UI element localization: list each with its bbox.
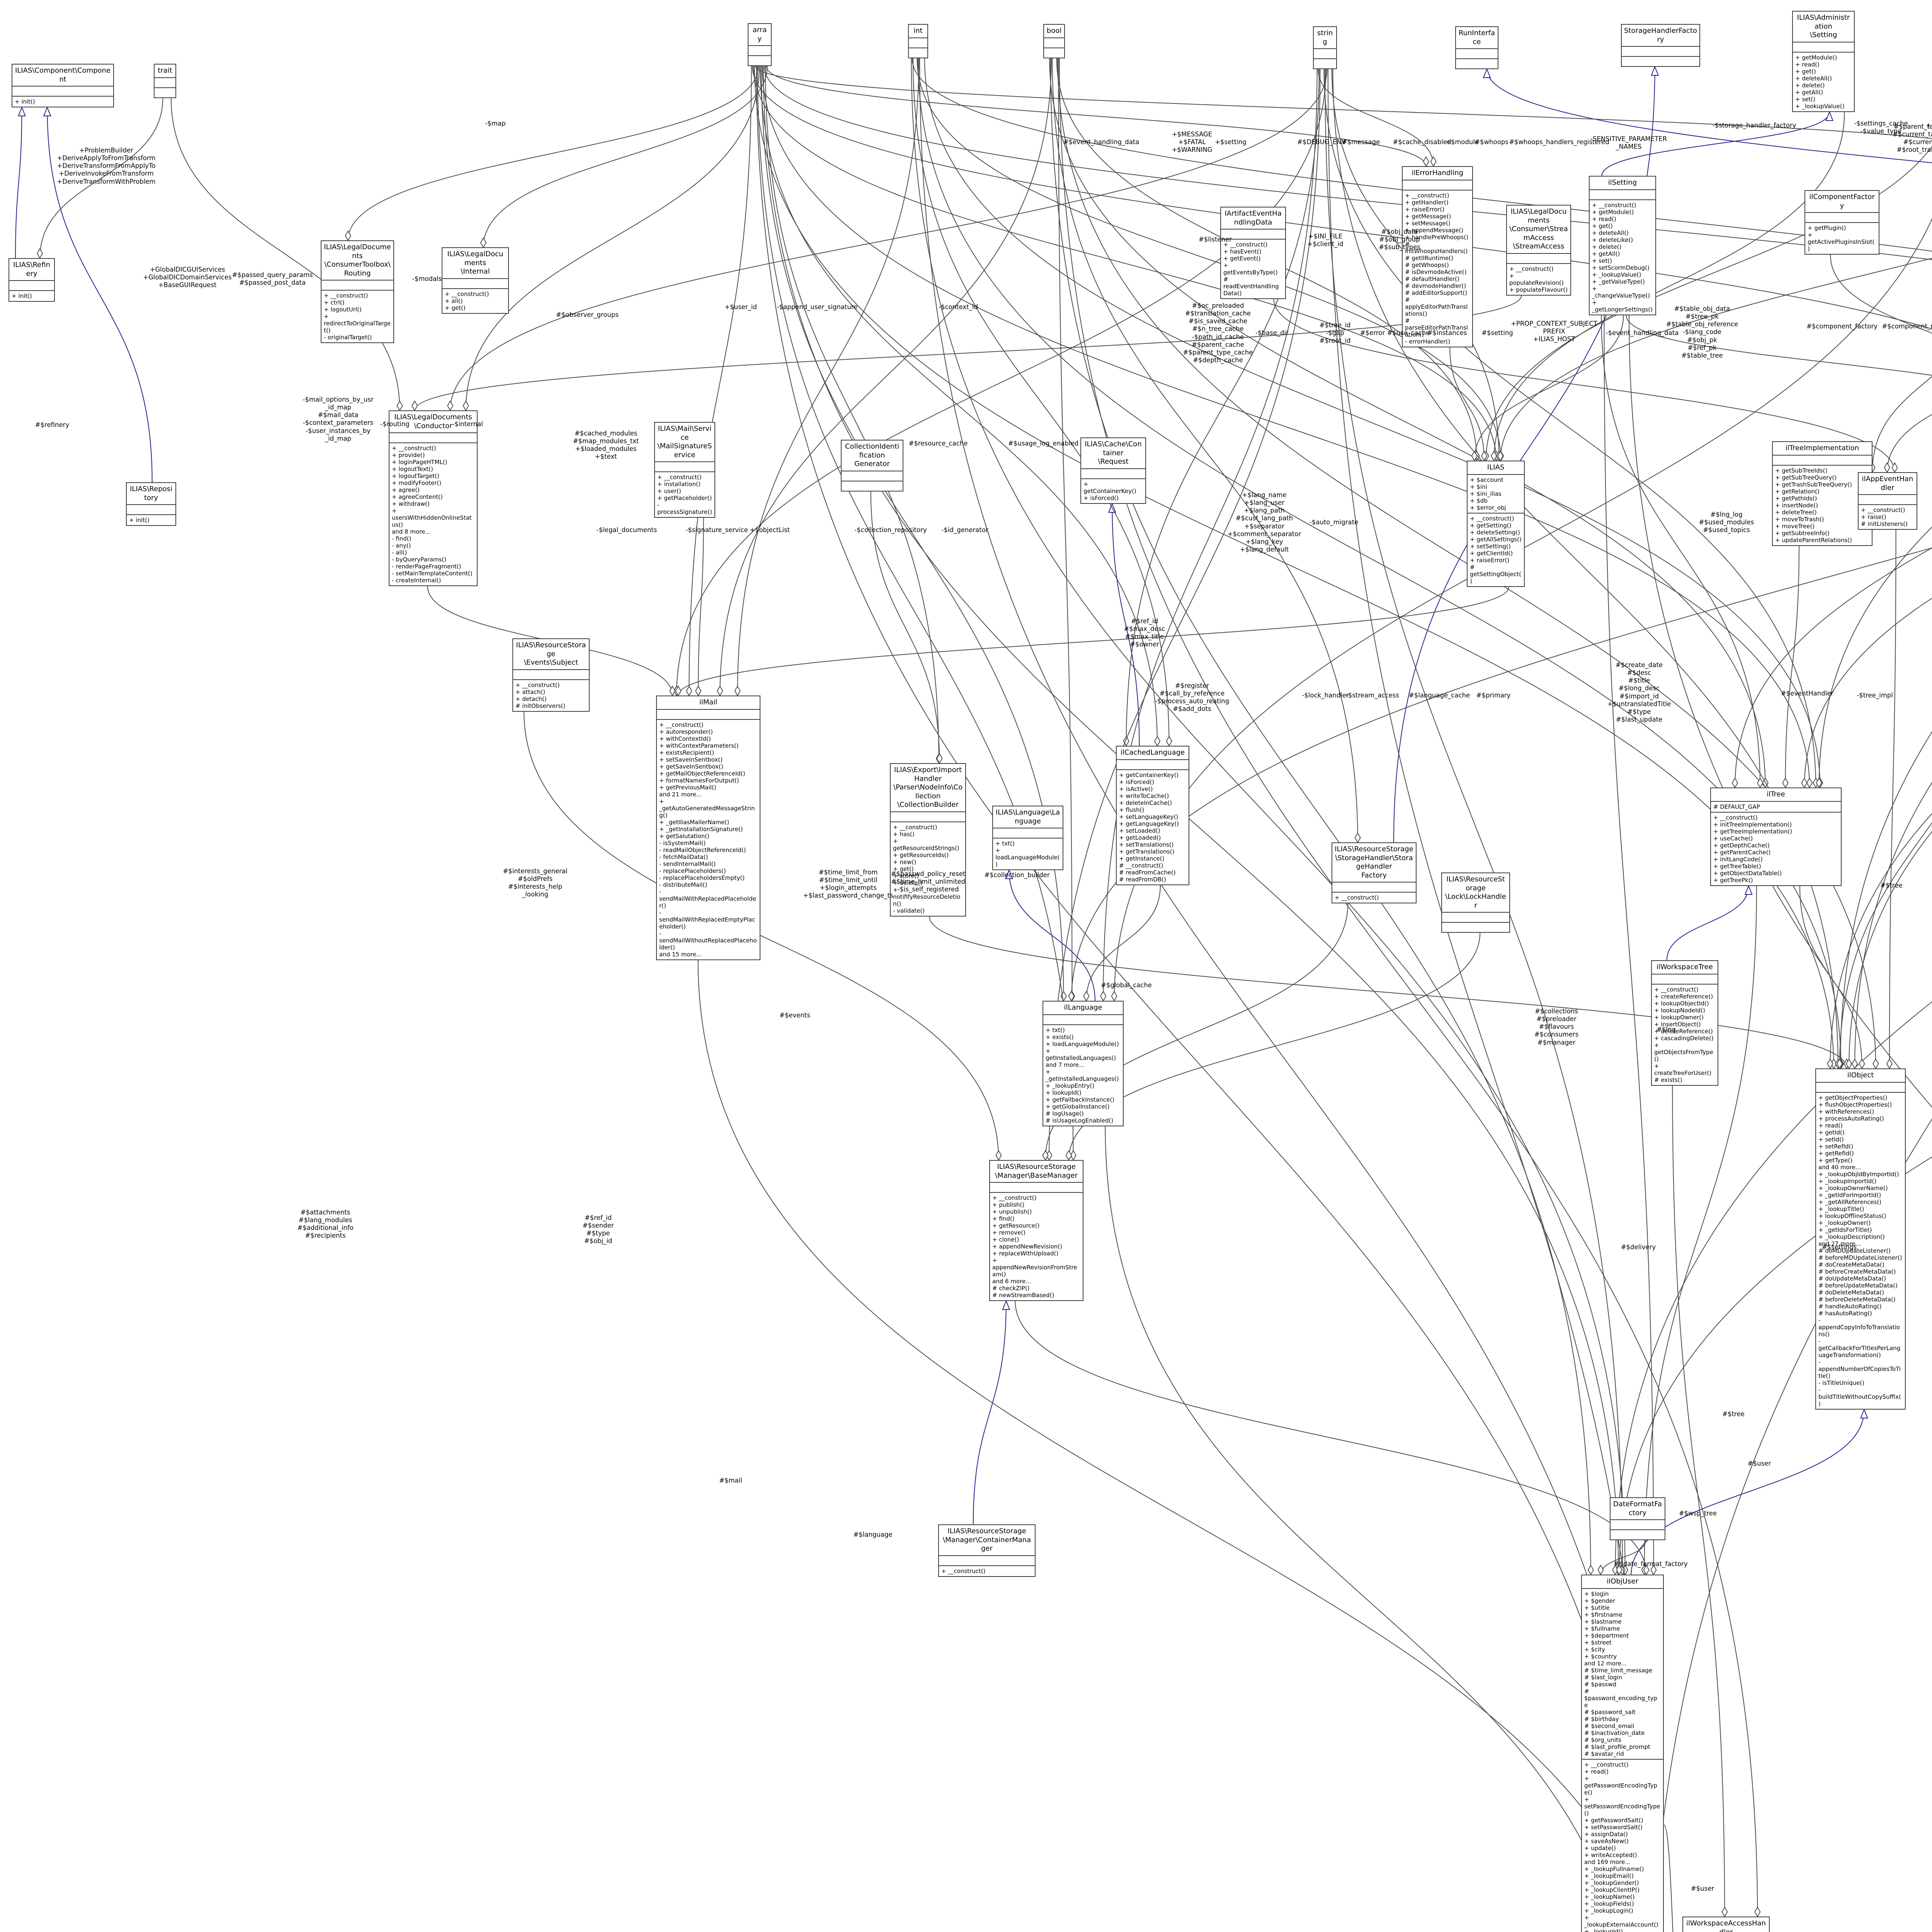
class-methods: + __construct() [939,1566,1035,1576]
edge-label-34: #$parent_tag_name #$current_tag_name #$c… [1893,123,1932,154]
edge-label-15: +$setting [1215,138,1247,146]
class-attributes [1044,38,1064,48]
class-methods: + txt()+ loadLanguageModule() [993,838,1063,869]
edge-label-63: -$tree_impl [1857,692,1893,699]
edge-label-10: +$user_id [724,303,757,311]
class-title: ILIAS [1468,461,1524,475]
class-methods: + getPlugin()+ getActivePluginsInSlot() [1805,223,1879,254]
class-attributes [657,710,760,720]
class-node-shf[interactable]: StorageHandlerFactory [1621,24,1700,67]
class-title: trait [155,65,175,78]
class-methods [1456,59,1498,68]
edge-label-37: #$component_factory [1806,323,1878,330]
class-title: ILIAS\Export\ImportHandler\Parser\NodeIn… [891,764,965,812]
edge-illanguage-to-mailnotification [1105,1126,1640,1932]
edge-array-to-conductor [466,66,759,410]
edge-objectdic-to-ilobject [1849,239,1932,1068]
edge-label-86: #$delivery [1621,1243,1656,1251]
edge-label-0: +ProblemBuilder +DeriveApplyToFromTransf… [57,147,156,186]
class-title: CollectionIdentificationGenerator [842,440,903,471]
class-methods [909,48,927,58]
edge-label-83: #$collections #$preloader #$flavours #$c… [1534,1008,1579,1047]
class-attributes [1773,456,1872,466]
class-title: ILIAS\LegalDocuments\Internal [442,248,508,279]
class-title: RunInterface [1456,27,1498,49]
class-node-basemanager[interactable]: ILIAS\ResourceStorage\Manager\BaseManage… [989,1160,1083,1301]
class-attributes [513,670,589,680]
edge-label-61: #$primary [1476,692,1511,699]
class-node-repository[interactable]: ILIAS\Repository+ init() [126,482,176,526]
class-node-treeimpl[interactable]: ilTreeImplementation+ getSubTreeIds()+ g… [1772,441,1872,546]
class-methods: + getContainerKey()+ isForced()+ isActiv… [1117,770,1189,884]
class-methods: + __construct()+ raise()# initListeners(… [1859,505,1917,529]
class-node-trait[interactable]: trait [154,64,176,98]
class-attributes [1590,190,1655,200]
class-title: ilTree [1711,788,1841,802]
class-title: string [1314,27,1336,49]
edge-refinery-to-component [15,107,22,258]
class-attributes [748,46,771,56]
class-methods: + __construct()+ has()+ getResourceIdStr… [891,822,965,916]
edge-label-1: +GlobalDICGUIServices +GlobalDICDomainSe… [143,266,231,289]
edge-label-75: +$objectList [750,526,790,534]
edge-ilobjuser-to-wsaccess [1664,1825,1682,1932]
edge-label-56: #$lng_log #$used_modules #$used_topics [1699,511,1754,534]
class-methods: + __construct()+ all()+ get() [442,289,508,313]
class-methods [1314,59,1336,68]
edge-label-77: -$id_generator [941,526,988,534]
edge-label-53: #$table_obj_data #$tree_pk #$table_obj_r… [1666,305,1738,360]
edge-label-57: #$register #$call_by_reference -$process… [1155,682,1229,713]
class-node-bool[interactable]: bool [1043,24,1065,58]
class-node-lockhandler[interactable]: ILIAS\ResourceStorage\Lock\LockHandler [1441,872,1510,933]
class-methods: + __construct()+ installation()+ user()+… [655,472,714,517]
class-methods: + txt()+ exists()+ loadLanguageModule()+… [1043,1025,1123,1126]
class-attributes [1816,1083,1905,1093]
edge-label-17: #$message [1342,138,1380,146]
class-methods: + __construct()+ read()+ getPasswordEnco… [1582,1760,1663,1932]
edge-label-73: -$legal_documents [597,526,657,534]
class-title: ilAppEventHandler [1859,473,1917,495]
class-node-ilsetting[interactable]: ilSetting+ __construct()+ getModule()+ r… [1589,176,1656,315]
class-node-dateformatfactory[interactable]: DateFormatFactory [1610,1497,1665,1540]
class-node-storagehandlerfactory_rs[interactable]: ILIAS\ResourceStorage\StorageHandler\Sto… [1332,842,1417,903]
edge-label-84: #$lng [1656,1026,1676,1034]
class-attributes [1043,1015,1123,1025]
edge-label-48: #$use_cache [1387,329,1430,337]
class-node-component[interactable]: ILIAS\Component\Component+ init() [12,64,114,107]
class-attributes [1332,883,1416,893]
edge-ilias-to-ilmail [678,587,1509,696]
edge-containermanager-to-basemanager [973,1301,1006,1524]
class-node-wsaccess[interactable]: ilWorkspaceAccessHandler+ __construct()+… [1682,1917,1770,1932]
class-title: ILIAS\Administration\Setting [1793,12,1854,43]
class-title: ILIAS\ResourceStorage\Manager\ContainerM… [939,1525,1035,1556]
class-title: ilTreeImplementation [1773,442,1872,456]
class-methods: + __construct()+ publish()+ unpublish()+… [990,1193,1083,1300]
class-attributes [993,828,1063,838]
class-methods: + __construct()+ getHandler()+ raiseErro… [1403,190,1472,347]
edge-label-5: -$mail_options_by_usr _id_map #$mail_dat… [303,396,373,443]
edge-label-55: -$auto_migrate [1310,519,1358,526]
class-title: ilWorkspaceTree [1652,961,1718,975]
edge-label-64: #$eventHandler [1781,690,1833,697]
edge-mailsig-to-ilmail [698,518,704,696]
class-attributes [1456,49,1498,59]
class-attributes [655,462,714,472]
edge-wstree-to-iltree [1667,886,1749,960]
class-methods: + __construct()+ populateRevision()+ pop… [1507,264,1570,295]
class-node-artifact_ehd[interactable]: IArtifactEventHandlingData+ __construct(… [1220,207,1286,299]
edge-label-95: #$mail [719,1477,742,1485]
edge-const-to-iltree [1819,80,1932,787]
class-node-ilmail[interactable]: ilMail+ __construct()+ autoresponder()+ … [656,696,760,960]
class-attributes [1314,49,1336,59]
edge-label-46: #$tree_id -$gap #$root_id [1320,321,1351,345]
edge-label-12: -$context_id [939,303,978,311]
class-node-admin_setting[interactable]: ILIAS\Administration\Setting+ getModule(… [1792,11,1855,112]
edge-label-79: #$usage_log_enabled [1008,440,1078,447]
edge-label-11: -$append_user_signature [777,303,858,311]
class-node-runinterface[interactable]: RunInterface [1455,26,1498,69]
edge-label-90: #$time_limit_from #$time_limit_until +$l… [803,869,893,900]
edge-label-76: -$collection_repository [854,526,927,534]
class-node-array[interactable]: array [748,23,772,66]
edge-label-54: +$lang_name +$lang_user +$lang_path #$cu… [1228,492,1301,554]
edge-objdef-to-ilobject [1840,599,1932,1068]
class-title: ILIAS\Cache\Container\Request [1081,438,1145,469]
edge-compfactory-to-objdef [1830,255,1932,410]
class-attributes [1611,1520,1665,1530]
class-title: ilWorkspaceAccessHandler [1683,1917,1769,1932]
class-node-ilobjuser[interactable]: ilObjUser+ $login+ $gender+ $utitle+ $fi… [1581,1575,1664,1932]
edge-label-7: -$internal [452,420,483,428]
class-node-streamaccess[interactable]: ILIAS\LegalDocuments\Consumer\StreamAcce… [1506,205,1571,296]
class-methods [1611,1530,1665,1539]
edge-label-6: -$routing [380,420,409,428]
edge-label-23: #$listener [1199,236,1232,243]
class-attributes [1622,47,1699,57]
edge-array-to-routing [348,66,759,240]
class-attributes [155,78,175,88]
edge-string-to-ilmail [677,69,1326,696]
edge-label-81: #$cached_modules #$map_modules_txt +$loa… [573,430,639,461]
class-methods: + getSubTreeIds()+ getSubTreeQuery()+ ge… [1773,466,1872,545]
class-node-iltree[interactable]: ilTree# DEFAULT_GAP+ __construct()+ init… [1710,787,1842,886]
class-title: ILIAS\LegalDocuments\ConsumerToolbox\Rou… [321,241,393,281]
edge-label-97: #$user [1748,1460,1771,1468]
class-attributes [12,87,113,97]
class-attributes [1859,495,1917,505]
class-title: ILIAS\ResourceStorage\StorageHandler\Sto… [1332,843,1416,883]
class-title: bool [1044,25,1064,38]
edge-label-18: #$cache_disabled [1393,138,1451,146]
class-attributes [9,281,54,291]
class-attributes: + $account+ $ini+ $ini_ilias+ $db+ $erro… [1468,475,1524,514]
class-node-subject[interactable]: ILIAS\ResourceStorage\Events\Subject+ __… [512,638,590,712]
class-attributes [939,1556,1035,1566]
class-methods: + __construct()+ autoresponder()+ withCo… [657,720,760,959]
class-title: ILIAS\Repository [127,483,175,505]
edge-label-80: #$resource_cache [909,440,968,447]
class-node-cachedlang[interactable]: ilCachedLanguage+ getContainerKey()+ isF… [1116,746,1189,885]
edge-illogger-to-ilobject [1855,274,1932,1068]
edge-label-78: #$ref_id #$max_desc #$max_title #$owner [1124,617,1165,649]
class-node-routing[interactable]: ILIAS\LegalDocuments\ConsumerToolbox\Rou… [321,240,394,343]
class-title: ILIAS\Mail\Service\MailSignatureService [655,423,714,462]
class-title: ilObjUser [1582,1575,1663,1589]
edge-label-45: -$base_dir [1255,329,1289,337]
class-attributes [842,471,903,481]
edge-label-94: #$attachments #$lang_modules #$additiona… [297,1209,353,1240]
edge-label-82: #$global_cache [1101,981,1152,989]
class-methods: + init() [127,515,175,525]
class-attributes [321,281,393,291]
edge-ilobjuser-to-ilobject [1631,1410,1864,1575]
edge-ilsetting-to-ilobjuser [1604,315,1653,1575]
class-methods: + init() [9,291,54,301]
edge-label-47: #$error [1360,329,1385,337]
class-title: ILIAS\Language\Language [993,806,1063,828]
class-methods [1622,57,1699,66]
edge-label-87: #$settings [1822,1243,1857,1251]
class-title: ilLanguage [1043,1002,1123,1015]
edge-label-3: -$modals [412,275,442,283]
class-node-conductor[interactable]: ILIAS\LegalDocuments\Conductor+ __constr… [389,410,478,586]
class-attributes [990,1183,1083,1193]
class-attributes: # DEFAULT_GAP [1711,802,1841,813]
class-attributes [1081,469,1145,479]
edge-label-99: #$wsp_tree [1679,1510,1717,1517]
edge-label-2: #$passed_query_params #$passed_post_data [232,271,313,287]
class-attributes [1403,180,1472,190]
edge-label-50: #$setting [1481,329,1513,337]
edge-string-to-iltree [1324,69,1816,787]
edge-label-9: #$observer_groups [556,311,619,319]
class-methods: + __construct()+ initTreeImplementation(… [1711,813,1841,885]
class-title: DateFormatFactory [1611,1498,1665,1520]
edge-array-to-ilmail [689,66,751,696]
class-node-compfactory[interactable]: ilComponentFactory+ getPlugin()+ getActi… [1804,190,1879,255]
edge-label-38: #$component_repository [1882,323,1932,330]
class-node-appevent[interactable]: ilAppEventHandler+ __construct()+ raise(… [1858,472,1917,530]
class-attributes [127,505,175,515]
class-node-illanguage[interactable]: ilLanguage+ txt()+ exists()+ loadLanguag… [1043,1001,1124,1126]
edge-label-60: #$language_cache [1409,692,1470,699]
class-node-mailsig[interactable]: ILIAS\Mail\Service\MailSignatureService+… [654,422,715,518]
class-title: ilComponentFactory [1805,191,1879,213]
edge-label-16: #$DEBUG_ENV [1297,138,1346,146]
edge-label-62: #$create_date #$desc #$title #$long_desc… [1607,662,1671,724]
edge-comprepo-to-appevent [1872,289,1932,472]
edge-label-25: #$obj_data #$obj_group #$sub_types [1379,228,1420,251]
class-node-ilias[interactable]: ILIAS+ $account+ $ini+ $ini_ilias+ $db+ … [1467,461,1525,587]
class-methods: + getContainerKey()+ isForced() [1081,479,1145,503]
edge-illogger-to-appevent [1887,274,1932,472]
edge-label-4: #$refinery [35,421,69,429]
class-attributes [1507,254,1570,264]
class-attributes [891,812,965,822]
edge-label-26: -$storage_handler_factory [1713,122,1796,129]
class-node-int[interactable]: int [908,24,928,58]
class-methods [1044,48,1064,58]
class-methods [155,88,175,97]
class-title: ILIAS\Refinery [9,259,54,281]
edge-label-14: +$MESSAGE +$FATAL +$WARNING [1172,131,1213,154]
edge-label-24: +$INI_FILE +$client_id [1308,233,1344,248]
class-title: ILIAS\Component\Component [12,65,113,87]
edge-label-93: #$ref_id #$sender #$type #$obj_id [583,1214,614,1245]
edge-array-to-ilias [753,66,1496,461]
edge-label-98: #$tree [1722,1410,1745,1418]
class-title: StorageHandlerFactory [1622,25,1699,47]
class-node-cachereq[interactable]: ILIAS\Cache\Container\Request+ getContai… [1080,437,1146,504]
class-node-errorhandling[interactable]: ilErrorHandling+ __construct()+ getHandl… [1402,166,1473,347]
class-title: ilErrorHandling [1403,167,1472,180]
class-attributes [1652,975,1718,985]
class-methods: + __construct()+ ctrl()+ logoutUrl()+ re… [321,291,393,342]
class-methods: + __construct()+ attach()+ detach()# ini… [513,680,589,711]
class-title: ILIAS\ResourceStorage\Manager\BaseManage… [990,1161,1083,1183]
edge-label-49: #$instances [1427,329,1467,337]
class-attributes [1117,760,1189,770]
class-methods [842,481,903,491]
edge-wstree-to-wsaccess [1672,1086,1725,1917]
edge-label-100: #$date_format_factory [1614,1560,1687,1568]
class-methods: + init() [12,97,113,107]
class-title: int [909,25,927,38]
edge-basemanager-to-ilobjuser [1015,1301,1646,1575]
class-title: ilCachedLanguage [1117,747,1189,760]
class-methods: + __construct()+ createReference()+ look… [1652,985,1718,1085]
edge-label-89: #$collection_builder [984,871,1049,879]
edge-label-13: #$event_handling_data [1063,138,1139,146]
edge-array-to-basemanager [757,66,1073,1160]
edge-label-19: +$module [1446,138,1479,146]
class-methods [748,56,771,65]
edge-label-8: -$map [485,120,505,128]
edge-label-51: +PROP_CONTEXT_SUBJECT PREFIX +ILIAS_HOST [1511,320,1597,343]
edge-array-to-ilobject [755,66,1834,1068]
edge-label-74: -$signature_service [685,526,748,534]
class-node-refinery[interactable]: ILIAS\Refinery+ init() [9,258,55,302]
class-node-internal[interactable]: ILIAS\LegalDocuments\Internal+ __constru… [442,247,509,314]
edge-treeimpl-to-iltree [1785,546,1799,787]
edge-label-101: #$user [1691,1885,1714,1893]
class-methods: + __construct()+ getModule()+ read()+ ge… [1590,200,1655,315]
class-methods: + getModule()+ read()+ get()+ deleteAll(… [1793,53,1854,111]
class-title: array [748,24,771,46]
class-methods [1442,923,1509,932]
class-methods: + __construct() [1332,893,1416,903]
edge-label-91: #$passwd_policy_reset #$time_limit_unlim… [891,870,966,893]
edge-string-to-ilobjuser [1325,69,1622,1575]
edge-label-20: #$whoops [1475,138,1509,146]
edge-label-85: #$tree [1880,882,1903,889]
class-attributes: + $login+ $gender+ $utitle+ $firstname+ … [1582,1589,1663,1760]
class-attributes [1793,43,1854,53]
edge-label-59: -$stream_access [1346,692,1399,699]
class-title: ILIAS\LegalDocuments\Consumer\StreamAcce… [1507,206,1570,254]
edge-lockhandler-to-basemanager [1069,933,1480,1160]
class-title: ILIAS\ResourceStorage\Lock\LockHandler [1442,873,1509,913]
class-title: IArtifactEventHandlingData [1221,207,1285,230]
edge-label-92: #$interests_general #$oldPrefs #$interes… [503,867,567,899]
class-attributes [442,279,508,289]
class-node-ilobject[interactable]: ilObject+ getObjectProperties()+ flushOb… [1815,1068,1906,1410]
edge-label-22: -SENSITIVE_PARAMETER _NAMES [1590,135,1667,151]
class-node-wstree[interactable]: ilWorkspaceTree+ __construct()+ createRe… [1651,960,1718,1086]
class-node-language_if[interactable]: ILIAS\Language\Language+ txt()+ loadLang… [992,806,1063,870]
edge-label-44: #$oc_preloaded #$translation_cache #$is_… [1183,302,1253,364]
edge-label-58: -$lock_handler [1302,692,1349,699]
class-title: ilObject [1816,1069,1905,1083]
edge-ilmail-to-mailnotification [698,960,1682,1932]
class-methods: + __construct()+ hasEvent()+ getEvent()+… [1221,240,1285,298]
class-node-collgen[interactable]: CollectionIdentificationGenerator [841,440,903,492]
class-node-string[interactable]: string [1313,26,1337,69]
class-attributes [1805,213,1879,223]
edge-appevent-to-ilobject [1889,530,1896,1068]
class-title: ILIAS\ResourceStorage\Events\Subject [513,639,589,670]
class-attributes [1442,913,1509,923]
edge-label-96: #$language [853,1531,892,1539]
class-methods: + __construct()+ provide()+ loginPageHTM… [389,443,477,585]
class-title: ilSetting [1590,177,1655,190]
class-attributes [389,433,477,443]
class-title: ilMail [657,696,760,710]
class-node-containermanager[interactable]: ILIAS\ResourceStorage\Manager\ContainerM… [938,1524,1036,1577]
edge-label-88: #$events [779,1012,810,1019]
class-methods: + __construct()+ getSetting()+ deleteSet… [1468,514,1524,586]
class-attributes [909,38,927,48]
